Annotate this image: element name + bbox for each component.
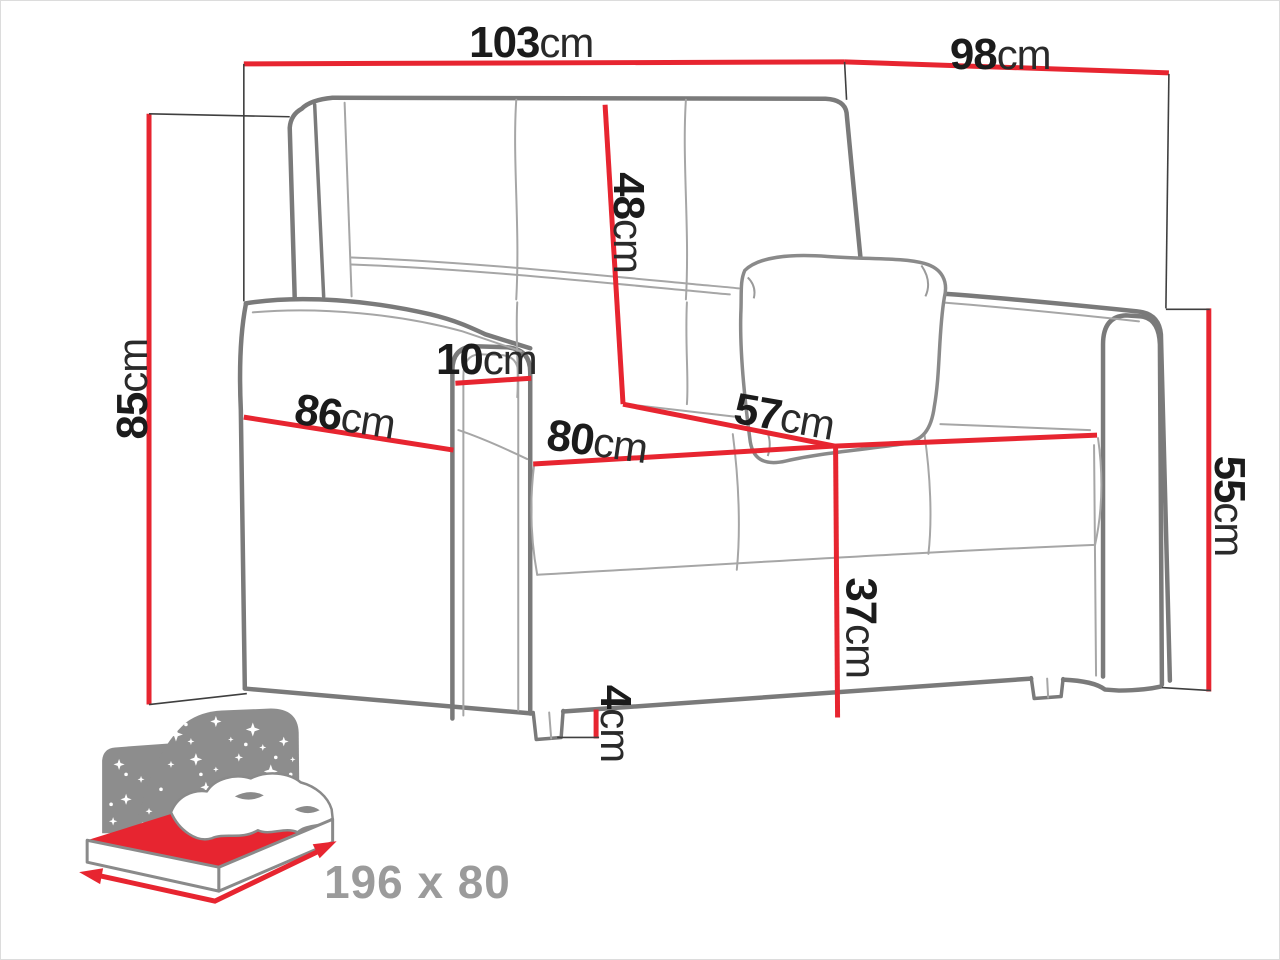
- extension-armrest-height-bottom: [1162, 688, 1211, 691]
- sleeping-size-label: 196 x 80: [324, 856, 511, 908]
- dimension-label-side-depth: 86cm: [291, 385, 398, 449]
- dimension-label-backrest-height: 48cm: [604, 172, 653, 273]
- right-armrest-top: [925, 292, 1169, 680]
- extension-top-depth-left: [845, 62, 847, 100]
- dimension-label-back-width: 103cm: [469, 18, 593, 67]
- front-left-leg: [533, 711, 563, 740]
- extension-top-depth-right: [1166, 74, 1169, 309]
- sofa-dimensions-drawing: 103cm 98cm 85cm 48cm 10cm 86cm 80cm 57cm…: [1, 1, 1279, 959]
- dimension-label-armrest-width: 10cm: [436, 335, 537, 384]
- dimension-labels: 103cm 98cm 85cm 48cm 10cm 86cm 80cm 57cm…: [108, 18, 1254, 762]
- extension-total-height-top: [149, 114, 290, 117]
- dimension-label-top-depth: 98cm: [950, 30, 1051, 79]
- extension-total-height-bottom: [149, 694, 247, 705]
- backrest-left-corner: [290, 98, 333, 299]
- right-armrest-panel: [1103, 315, 1162, 684]
- sleep-function-icon: 196 x 80: [79, 709, 511, 909]
- bottom-edge: [245, 679, 1161, 714]
- dimension-label-leg-height: 4cm: [591, 685, 640, 762]
- dimension-label-seat-height: 37cm: [837, 577, 886, 678]
- furniture-dimension-diagram: 103cm 98cm 85cm 48cm 10cm 86cm 80cm 57cm…: [0, 0, 1280, 960]
- left-side-edge: [240, 304, 246, 688]
- dimension-label-total-height: 85cm: [108, 339, 157, 440]
- dimension-label-armrest-height: 55cm: [1205, 456, 1254, 557]
- backrest-outline: [333, 98, 861, 259]
- backrest-side-panel-edge: [315, 105, 324, 297]
